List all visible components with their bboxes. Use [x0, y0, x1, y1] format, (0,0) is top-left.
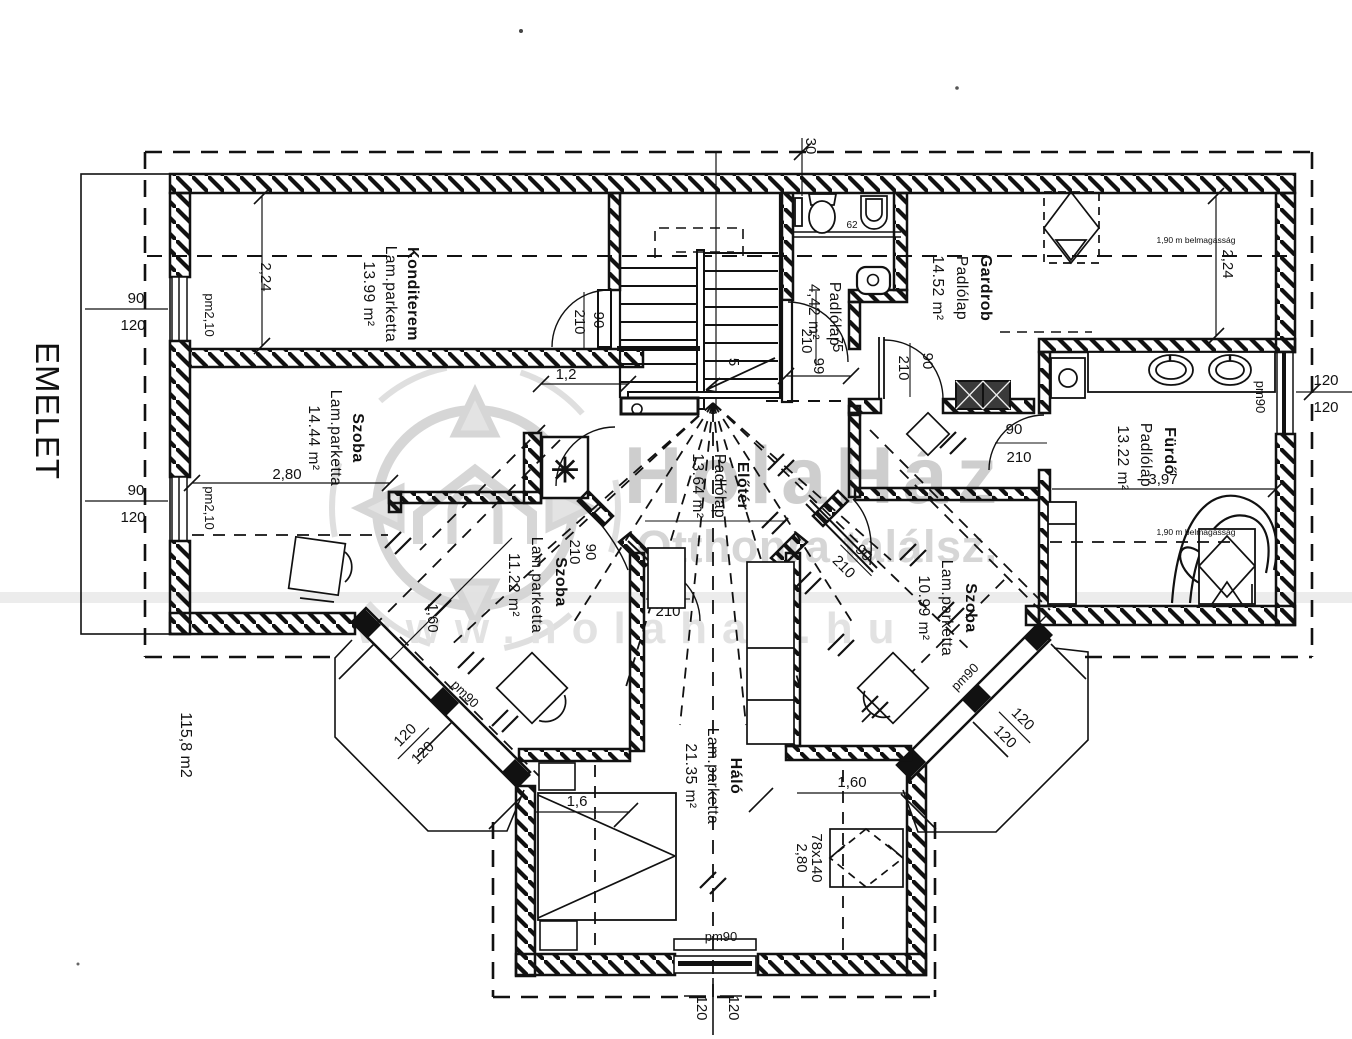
- svg-text:1,90 m belmagasság: 1,90 m belmagasság: [1157, 527, 1236, 537]
- svg-text:Konditerem: Konditerem: [404, 247, 421, 341]
- svg-text:90: 90: [919, 353, 936, 370]
- svg-text:✳: ✳: [551, 452, 580, 490]
- svg-text:120: 120: [120, 317, 145, 334]
- svg-text:99: 99: [810, 358, 827, 375]
- svg-text:30: 30: [802, 138, 819, 155]
- svg-text:Gardrob: Gardrob: [977, 255, 994, 322]
- svg-text:2,80: 2,80: [793, 843, 810, 872]
- svg-text:Háló: Háló: [727, 758, 744, 795]
- svg-text:13.64 m²: 13.64 m²: [689, 453, 706, 518]
- svg-text:3,97: 3,97: [1148, 471, 1177, 488]
- svg-text:HolaHáz: HolaHáz: [624, 431, 1007, 521]
- svg-text:14.44 m²: 14.44 m²: [305, 405, 322, 470]
- svg-text:120: 120: [725, 995, 742, 1020]
- svg-text:115,8 m2: 115,8 m2: [177, 712, 194, 778]
- svg-text:210: 210: [1006, 449, 1031, 466]
- svg-text:90: 90: [128, 290, 145, 307]
- svg-text:Szoba: Szoba: [349, 413, 366, 463]
- svg-text:pm90: pm90: [705, 929, 738, 944]
- svg-text:13.99 m²: 13.99 m²: [360, 261, 377, 326]
- svg-text:2,24: 2,24: [1219, 249, 1236, 278]
- svg-text:Szoba: Szoba: [552, 557, 569, 607]
- svg-text:2,80: 2,80: [272, 466, 301, 483]
- svg-text:11.22 m²: 11.22 m²: [505, 553, 522, 617]
- svg-text:Szoba: Szoba: [962, 583, 979, 633]
- svg-text:Lam.parketta: Lam.parketta: [528, 537, 545, 633]
- svg-text:21.35 m²: 21.35 m²: [682, 743, 699, 808]
- svg-text:90: 90: [128, 482, 145, 499]
- svg-text:210: 210: [571, 309, 588, 334]
- svg-text:pm2,10: pm2,10: [202, 293, 217, 336]
- svg-text:pm90: pm90: [1253, 381, 1268, 414]
- svg-text:2,24: 2,24: [257, 262, 274, 291]
- svg-text:120: 120: [1313, 399, 1338, 416]
- svg-text:120: 120: [693, 995, 710, 1020]
- svg-text:1,2: 1,2: [556, 366, 577, 383]
- svg-text:Lam.parketta: Lam.parketta: [327, 390, 344, 486]
- svg-text:10.99 m²: 10.99 m²: [915, 575, 932, 640]
- svg-text:90: 90: [590, 312, 607, 329]
- svg-text:EMELET: EMELET: [29, 342, 66, 480]
- svg-text:75: 75: [829, 336, 846, 353]
- svg-text:Lam.parketta: Lam.parketta: [382, 246, 399, 342]
- svg-text:1,60: 1,60: [837, 774, 866, 791]
- svg-text:1,90 m belmagasság: 1,90 m belmagasság: [1157, 235, 1236, 245]
- svg-text:pm2,10: pm2,10: [202, 486, 217, 529]
- svg-text:210: 210: [798, 328, 815, 353]
- svg-text:Fürdő: Fürdő: [1161, 427, 1178, 475]
- svg-text:62: 62: [846, 220, 858, 231]
- svg-text:90: 90: [582, 544, 599, 561]
- svg-text:Padlólap: Padlólap: [953, 256, 970, 320]
- svg-text:Előtér: Előtér: [734, 462, 751, 510]
- svg-text:210: 210: [566, 539, 583, 564]
- svg-text:14.52 m²: 14.52 m²: [929, 255, 946, 320]
- svg-text:5: 5: [725, 358, 742, 366]
- svg-text:13.22 m²: 13.22 m²: [1114, 425, 1131, 490]
- svg-text:1,6: 1,6: [567, 793, 588, 810]
- svg-text:120: 120: [120, 509, 145, 526]
